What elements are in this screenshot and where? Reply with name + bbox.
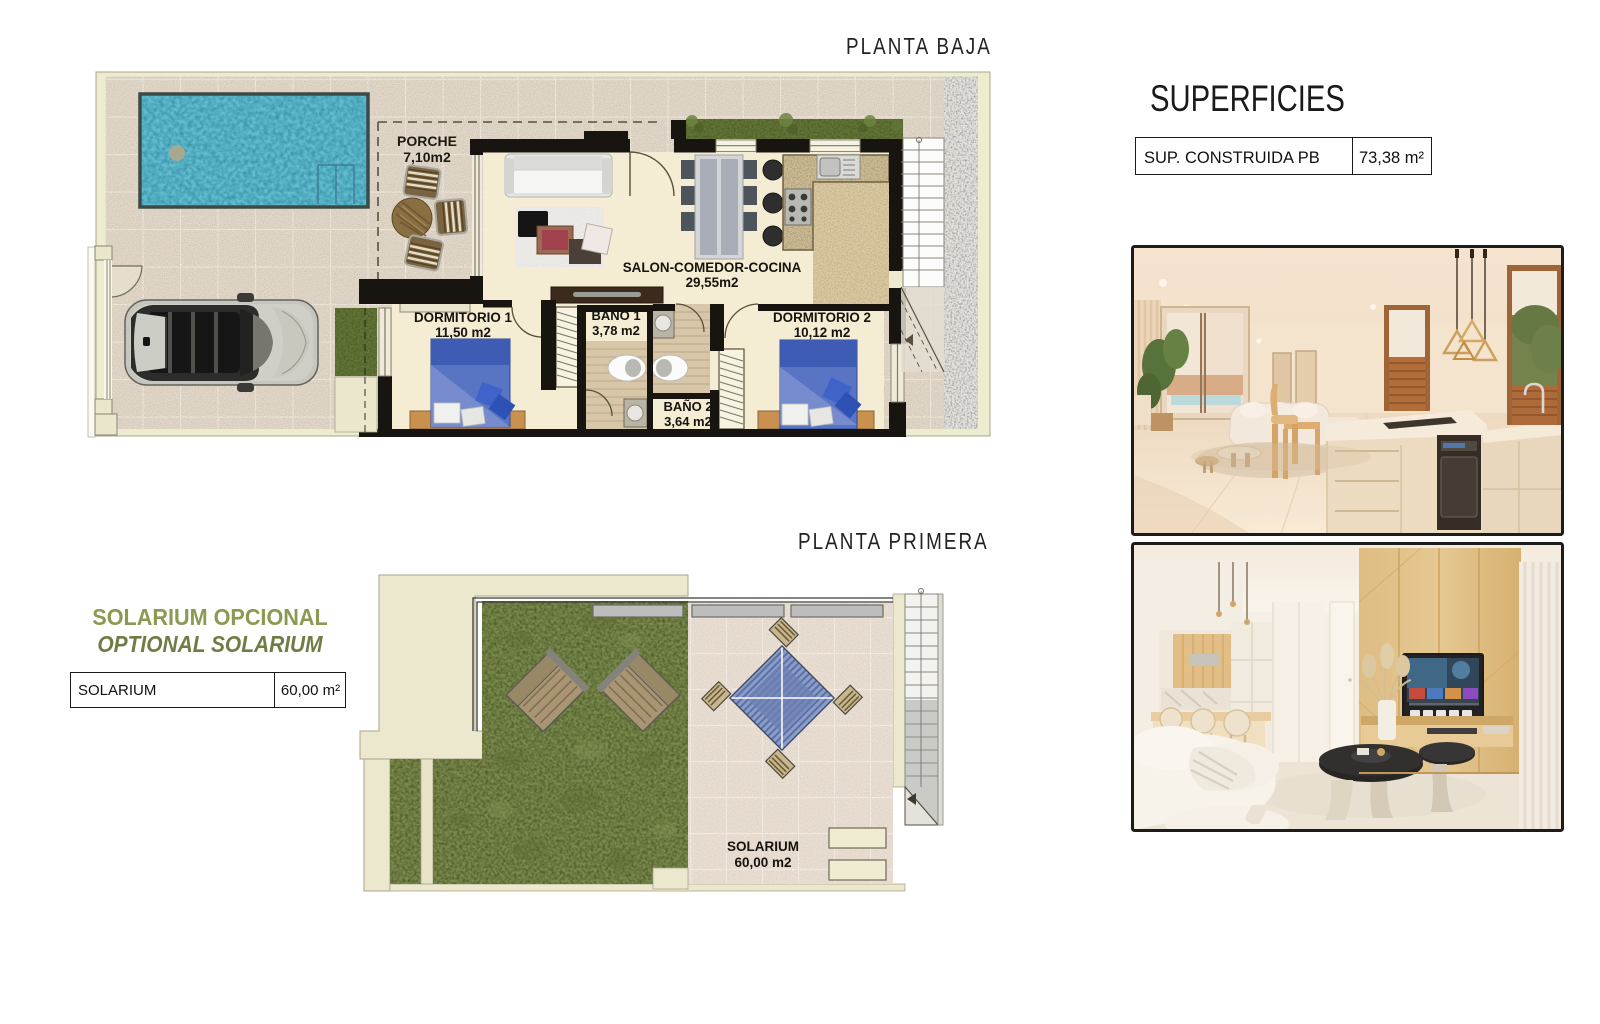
svg-text:SALON-COMEDOR-COCINA: SALON-COMEDOR-COCINA [623, 260, 802, 275]
svg-text:3,78 m2: 3,78 m2 [592, 323, 640, 338]
svg-text:BAÑO 2: BAÑO 2 [663, 399, 712, 414]
svg-text:60,00 m2: 60,00 m2 [734, 855, 791, 870]
svg-text:29,55m2: 29,55m2 [686, 275, 739, 290]
svg-text:10,12 m2: 10,12 m2 [794, 325, 851, 340]
svg-text:11,50 m2: 11,50 m2 [435, 325, 491, 340]
svg-text:DORMITORIO 2: DORMITORIO 2 [773, 310, 871, 325]
svg-text:PORCHE: PORCHE [397, 133, 457, 149]
svg-text:SOLARIUM: SOLARIUM [727, 839, 799, 854]
svg-text:7,10m2: 7,10m2 [403, 149, 451, 165]
svg-text:3,64 m2: 3,64 m2 [664, 414, 712, 429]
